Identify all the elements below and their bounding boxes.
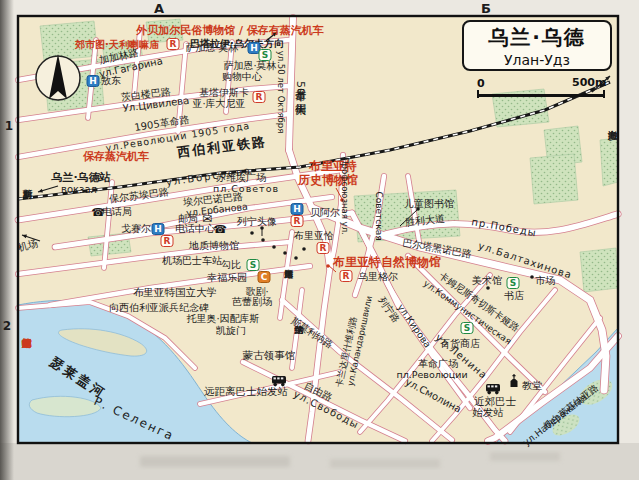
phone-icon: ☎ <box>213 223 227 236</box>
map-title-box: 乌兰·乌德 Улан-Удз <box>462 20 612 71</box>
poi-dot <box>530 275 534 279</box>
map-title-chinese: 乌兰·乌德 <box>488 24 586 51</box>
map-title-russian: Улан-Удз <box>504 52 570 68</box>
scanned-city-map-photo: ✉☎☎ 乌兰·乌德 Улан-Удз 0 500m 外贝加尔民俗博物馆 / 保存… <box>0 0 639 480</box>
poi-dot <box>340 198 344 202</box>
scale-zero-label: 0 <box>477 77 485 90</box>
poi-dot <box>326 264 330 268</box>
poi-dot <box>250 231 254 235</box>
phone-icon: ☎ <box>91 206 105 219</box>
poi-dot <box>260 226 264 230</box>
poi-dot <box>486 286 490 290</box>
photo-bottom-margin <box>0 443 639 480</box>
scale-length-label: 500m <box>572 76 606 89</box>
mail-icon: ✉ <box>202 212 212 226</box>
poi-dot <box>294 256 298 260</box>
photo-left-edge <box>0 0 14 480</box>
poi-dot <box>261 238 265 242</box>
poi-dot <box>416 207 420 211</box>
poi-dot <box>302 247 306 251</box>
map-canvas: ✉☎☎ <box>0 0 639 480</box>
poi-dot <box>272 245 276 249</box>
poi-dot <box>283 251 287 255</box>
